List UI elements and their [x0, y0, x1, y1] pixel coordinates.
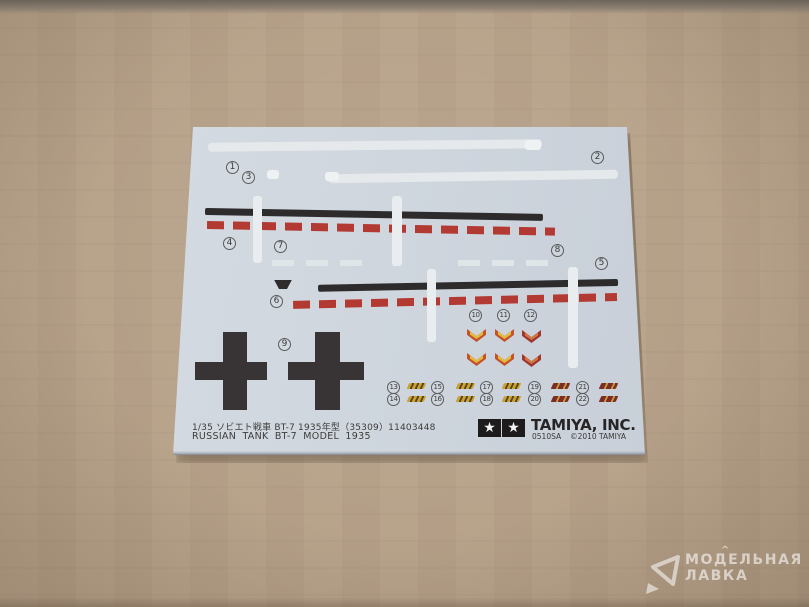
decal-white-stripe-2-tip [325, 172, 339, 181]
decal-white-stripe-1 [208, 139, 542, 151]
marker-7: 7 [274, 240, 287, 253]
marker-22: 22 [576, 393, 589, 406]
decal-chevron-10-top [467, 329, 486, 342]
marker-5: 5 [595, 257, 608, 270]
tamiya-product-code: 0510SA [532, 432, 561, 441]
decal-mini-strip-14 [407, 396, 427, 402]
marker-9: 9 [278, 338, 291, 351]
decal-white-vertical-stripe-b2 [568, 267, 578, 368]
decal-chevron-12-top [522, 330, 541, 343]
decal-mini-strip-22 [599, 396, 619, 402]
marker-6: 6 [270, 295, 283, 308]
cross-horizontal-bar [288, 362, 364, 380]
chevron-inner [525, 332, 538, 340]
decal-mini-strip-16 [456, 396, 476, 402]
marker-3: 3 [242, 171, 255, 184]
marker-16: 16 [431, 393, 444, 406]
tamiya-brand-subline: 0510SA ©2010 TAMIYA [532, 432, 626, 441]
decal-mini-strip-19 [551, 383, 571, 389]
marker-4: 4 [223, 237, 236, 250]
decal-black-cross-left [195, 332, 267, 410]
photo-of-decal-sheet: { "numbers": ["1","2","3","4","5","6","7… [0, 0, 809, 607]
decal-mini-strip-15 [456, 383, 476, 389]
chevron-inner [498, 331, 511, 339]
marker-18: 18 [480, 393, 493, 406]
marker-8: 8 [551, 244, 564, 257]
decal-white-dashed-stripe-2 [458, 260, 548, 266]
decal-black-trapezoid-6 [273, 280, 293, 289]
decal-chevron-11-bottom [495, 353, 514, 366]
watermark-triangle-logo-icon [645, 552, 683, 596]
decal-white-stripe-1-tip [525, 140, 541, 150]
marker-2: 2 [591, 151, 604, 164]
chevron-inner [498, 355, 511, 363]
marker-10: 10 [469, 309, 482, 322]
decal-mini-strip-20 [551, 396, 571, 402]
tamiya-star-icon: ★ [478, 419, 501, 437]
caption-english: RUSSIAN TANK BT-7 MODEL 1935 [192, 431, 371, 442]
decal-chevron-11-top [495, 329, 514, 342]
decal-white-square-3 [267, 170, 279, 179]
chevron-inner [525, 356, 538, 364]
shop-watermark: МОДЕЛЬНАЯ ЛАВКА ^ [645, 548, 809, 600]
marker-20: 20 [528, 393, 541, 406]
watermark-accent-mark: ^ [721, 545, 729, 556]
decal-mini-strip-13 [407, 383, 427, 389]
decal-mini-strip-17 [502, 383, 522, 389]
cross-horizontal-bar [195, 362, 267, 380]
photo-top-shadow-band [0, 0, 809, 14]
decal-white-dashed-stripe-1 [272, 260, 372, 266]
decal-black-cross-right [288, 332, 364, 410]
decal-sheet: 1 2 3 4 5 6 7 8 9 10 11 12 13 14 15 16 1… [173, 127, 645, 455]
decal-mini-strip-21 [599, 383, 619, 389]
decal-white-vertical-stripe-b1 [427, 269, 436, 342]
decal-white-vertical-stripe-a1 [253, 196, 262, 263]
decal-mini-strip-18 [502, 396, 522, 402]
sheet-bottom-edge [173, 451, 645, 455]
chevron-inner [470, 355, 483, 363]
marker-12: 12 [524, 309, 537, 322]
chevron-inner [470, 331, 483, 339]
decal-chevron-10-bottom [467, 353, 486, 366]
watermark-text-line1: МОДЕЛЬНАЯ [685, 552, 803, 568]
decal-chevron-12-bottom [522, 354, 541, 367]
watermark-text-line2: ЛАВКА [685, 568, 748, 584]
marker-14: 14 [387, 393, 400, 406]
tamiya-copyright: ©2010 TAMIYA [570, 432, 626, 441]
decal-white-stripe-2 [328, 170, 618, 184]
marker-1: 1 [226, 161, 239, 174]
marker-11: 11 [497, 309, 510, 322]
decal-white-vertical-stripe-a2 [392, 196, 402, 266]
tamiya-star-icon: ★ [502, 419, 525, 437]
